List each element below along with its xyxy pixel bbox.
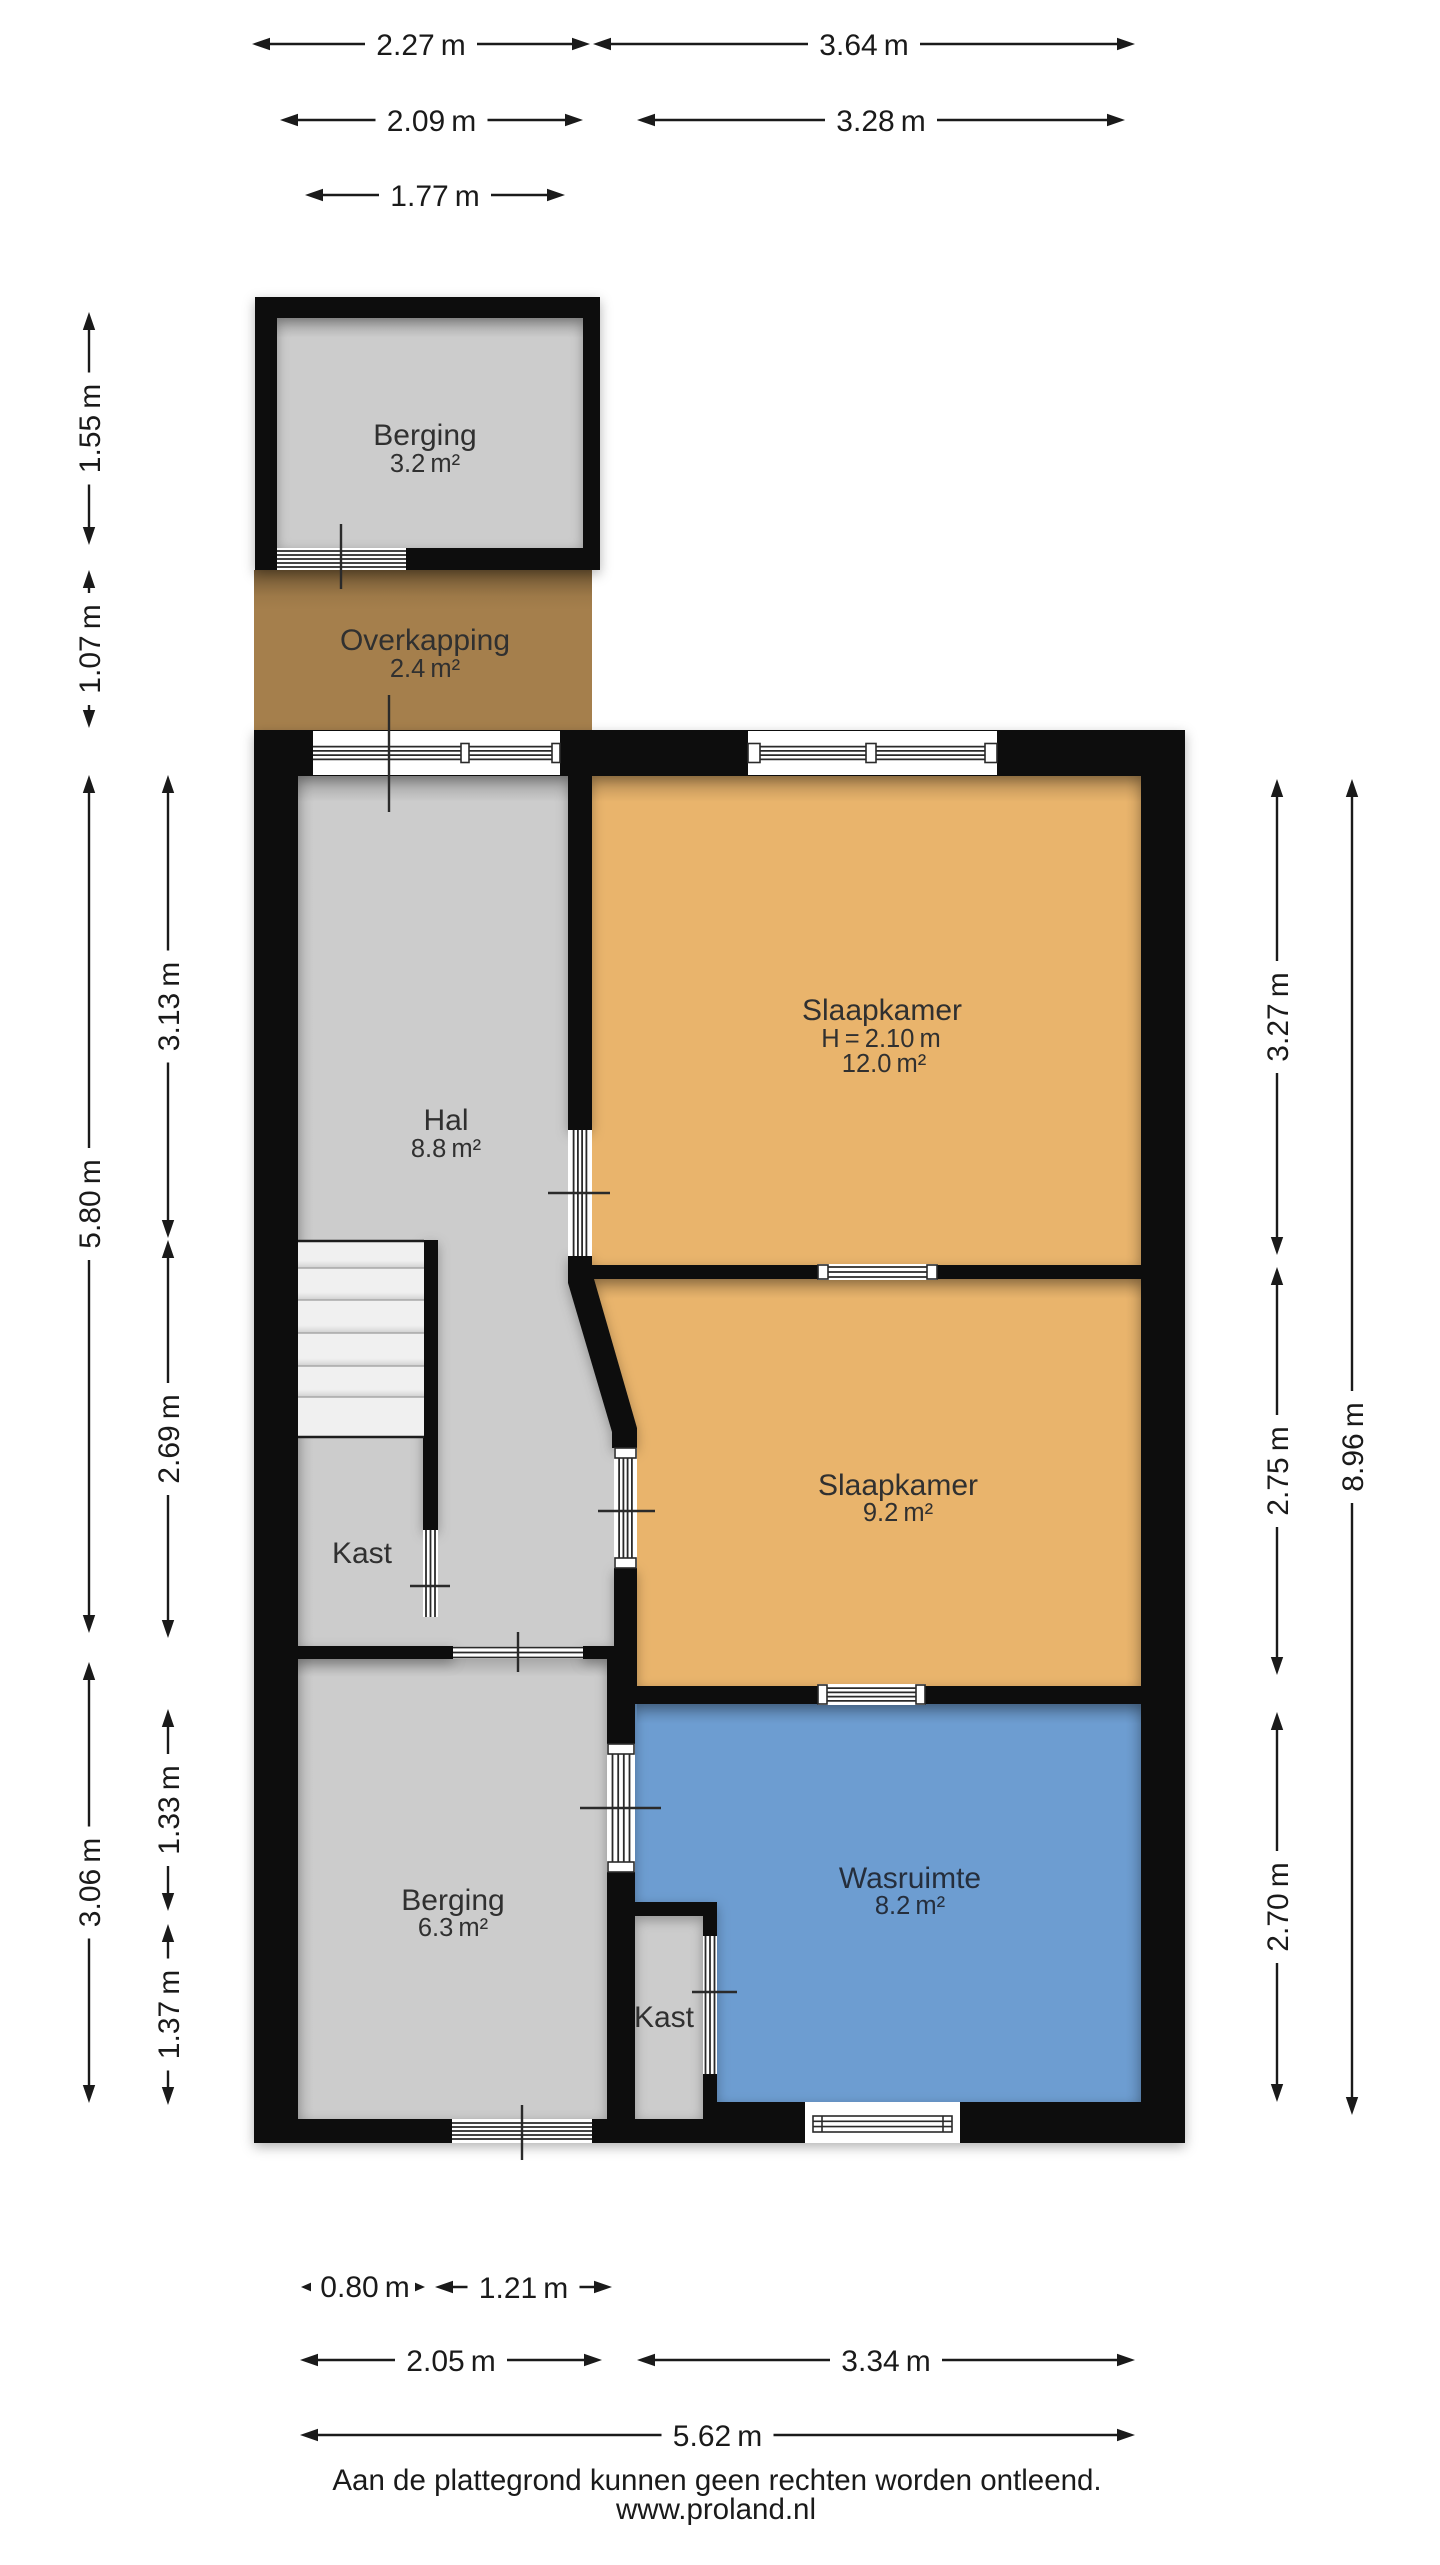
svg-text:8.2 m²: 8.2 m²	[875, 1892, 945, 1920]
svg-text:2.4 m²: 2.4 m²	[390, 655, 460, 683]
svg-text:Slaapkamer: Slaapkamer	[802, 994, 962, 1027]
svg-text:3.13 m: 3.13 m	[153, 962, 186, 1051]
svg-text:2.69 m: 2.69 m	[153, 1394, 186, 1483]
svg-text:6.3 m²: 6.3 m²	[418, 1914, 488, 1942]
svg-text:Kast: Kast	[332, 1537, 393, 1570]
svg-text:Kast: Kast	[634, 2001, 695, 2034]
svg-text:2.75 m: 2.75 m	[1262, 1426, 1295, 1515]
svg-text:1.77 m: 1.77 m	[390, 180, 479, 213]
svg-text:3.27 m: 3.27 m	[1262, 972, 1295, 1061]
svg-text:5.62 m: 5.62 m	[673, 2420, 762, 2453]
svg-text:5.80 m: 5.80 m	[74, 1159, 107, 1248]
svg-text:9.2 m²: 9.2 m²	[863, 1499, 933, 1527]
svg-text:2.09 m: 2.09 m	[387, 105, 476, 138]
svg-text:3.64 m: 3.64 m	[819, 29, 908, 62]
svg-text:www.proland.nl: www.proland.nl	[615, 2493, 816, 2526]
svg-text:3.2 m²: 3.2 m²	[390, 450, 460, 478]
svg-text:3.34 m: 3.34 m	[841, 2345, 930, 2378]
svg-text:Hal: Hal	[423, 1104, 468, 1137]
svg-text:8.8 m²: 8.8 m²	[411, 1135, 481, 1163]
svg-text:2.27 m: 2.27 m	[376, 29, 465, 62]
svg-text:1.07 m: 1.07 m	[74, 604, 107, 693]
svg-text:8.96 m: 8.96 m	[1337, 1402, 1370, 1491]
svg-text:Berging: Berging	[401, 1884, 504, 1917]
svg-text:1.37 m: 1.37 m	[153, 1970, 186, 2059]
svg-text:1.55 m: 1.55 m	[74, 384, 107, 473]
svg-text:12.0 m²: 12.0 m²	[842, 1050, 926, 1078]
svg-text:Overkapping: Overkapping	[340, 624, 510, 657]
svg-text:2.70 m: 2.70 m	[1262, 1862, 1295, 1951]
svg-text:3.28 m: 3.28 m	[836, 105, 925, 138]
svg-text:Berging: Berging	[373, 419, 476, 452]
svg-text:Wasruimte: Wasruimte	[839, 1862, 981, 1895]
svg-text:Slaapkamer: Slaapkamer	[818, 1469, 978, 1502]
svg-text:3.06 m: 3.06 m	[74, 1838, 107, 1927]
svg-text:H = 2.10 m: H = 2.10 m	[821, 1025, 941, 1053]
svg-text:2.05 m: 2.05 m	[406, 2345, 495, 2378]
svg-text:0.80 m: 0.80 m	[320, 2271, 409, 2304]
svg-text:1.21 m: 1.21 m	[479, 2272, 568, 2305]
svg-text:1.33 m: 1.33 m	[153, 1765, 186, 1854]
